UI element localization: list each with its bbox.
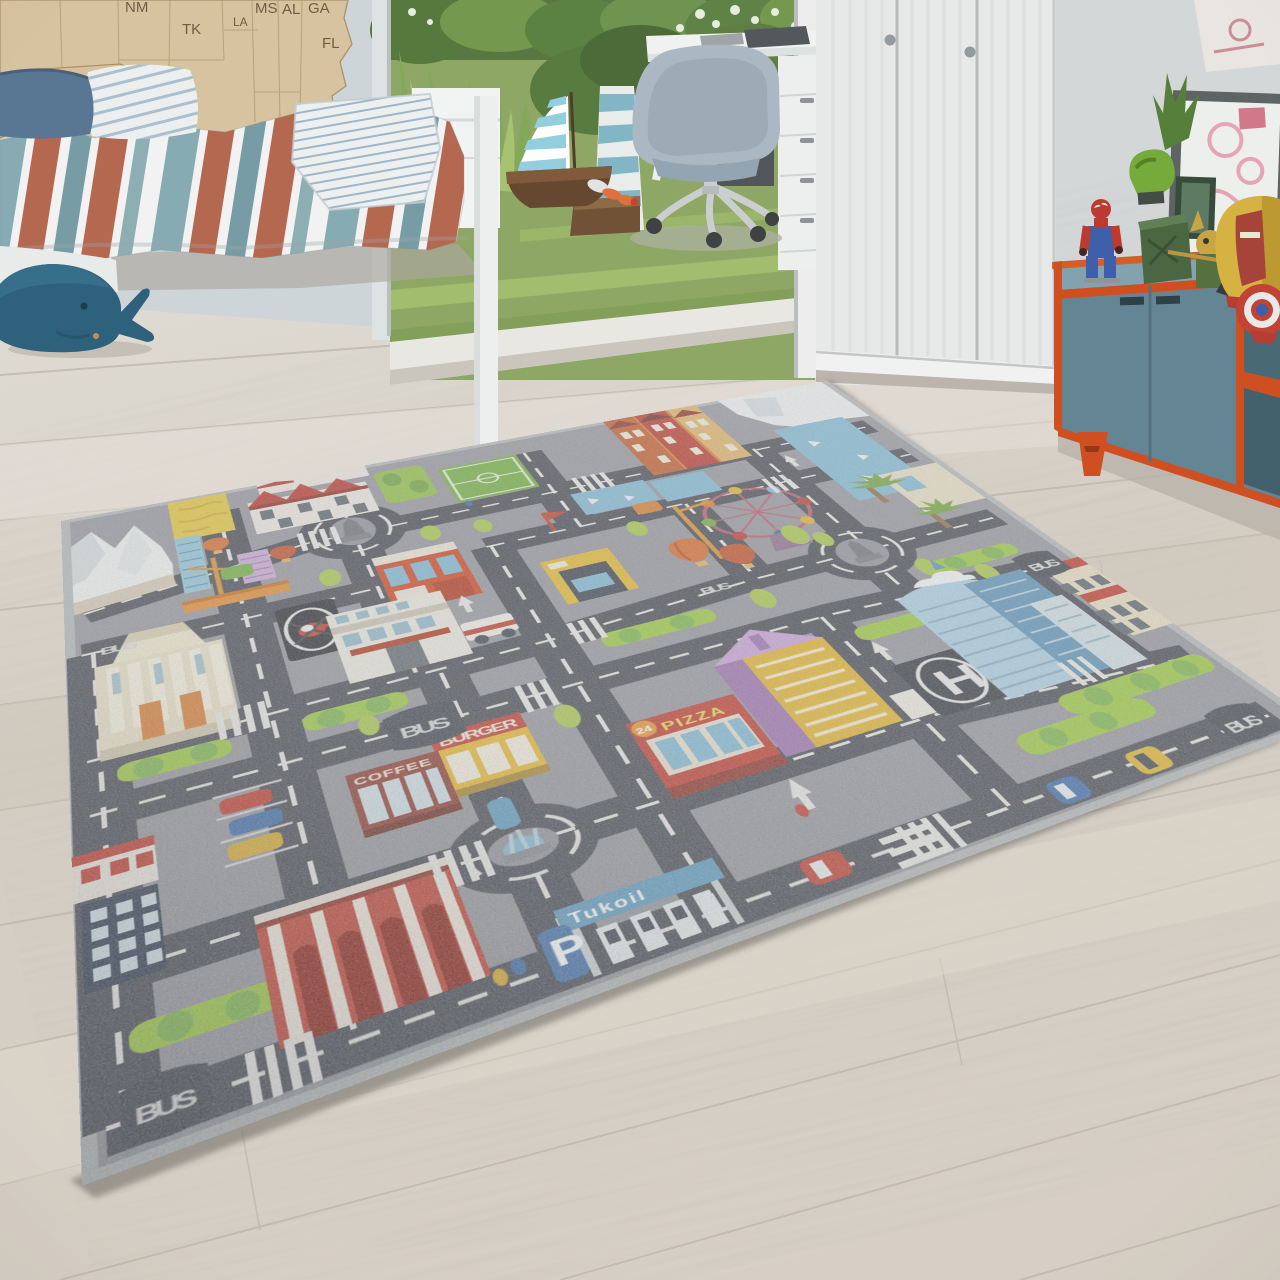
svg-text:FL: FL	[322, 35, 340, 52]
svg-text:AL: AL	[282, 1, 300, 18]
svg-text:NM: NM	[125, 0, 148, 16]
svg-text:LA: LA	[233, 15, 248, 29]
svg-text:GA: GA	[308, 0, 330, 17]
svg-text:MS: MS	[255, 0, 278, 17]
svg-text:TK: TK	[182, 21, 201, 38]
